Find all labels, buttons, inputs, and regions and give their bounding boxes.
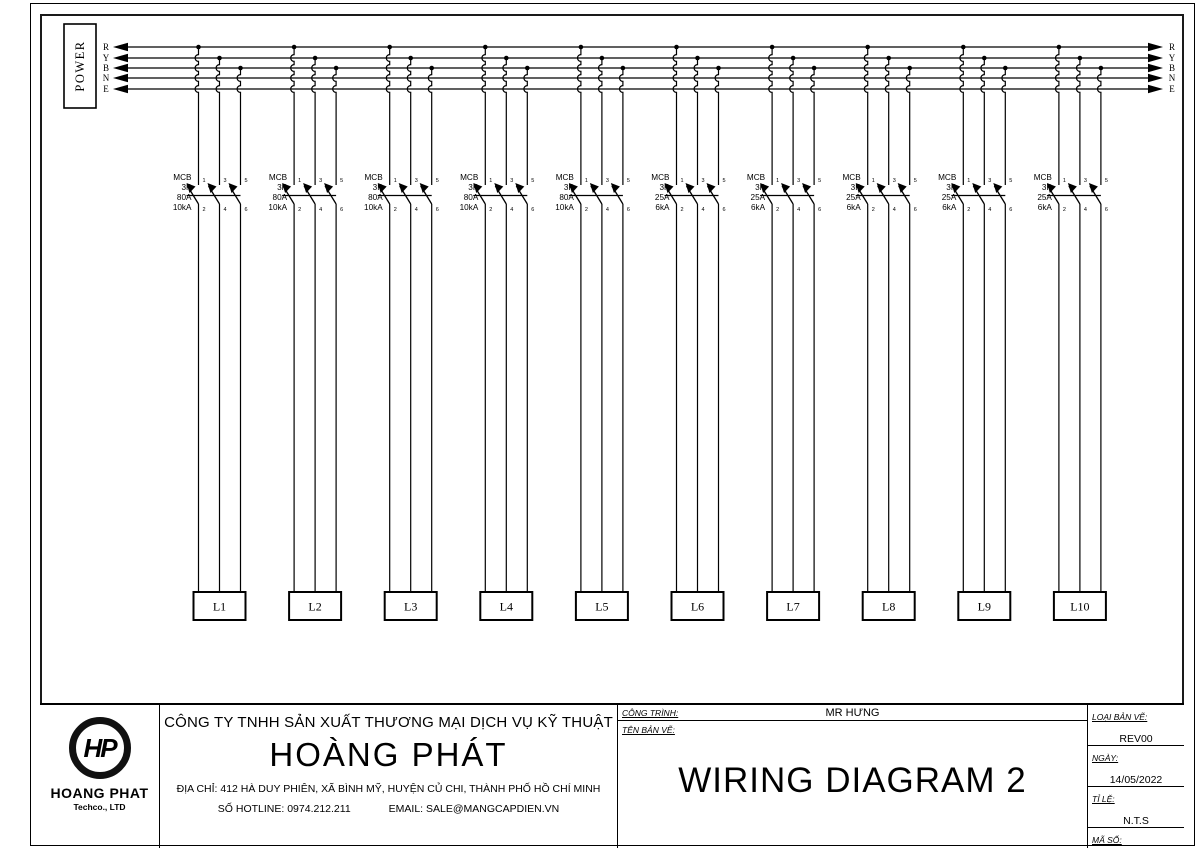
load-label: L7 — [786, 600, 799, 614]
terminal-number-bottom: 6 — [340, 207, 343, 213]
logo-monogram: HP — [83, 733, 115, 764]
mcb-group-L10: MCB3P25A6kA123456 — [1034, 45, 1108, 592]
terminal-number-bottom: 2 — [872, 207, 875, 213]
bus-connection-dot — [674, 45, 679, 50]
terminal-number-bottom: 6 — [914, 207, 917, 213]
mcb-rating-line: 6kA — [847, 203, 862, 212]
bus-connection-dot — [334, 66, 339, 71]
meta-value: N.T.S — [1088, 815, 1184, 827]
bus-arrow-right-icon — [1148, 74, 1163, 82]
company-address: ĐỊA CHỈ: 412 HÀ DUY PHIÊN, XÃ BÌNH MỸ, H… — [160, 783, 617, 795]
terminal-number-bottom: 6 — [531, 207, 534, 213]
mcb-rating-line: 80A — [464, 193, 479, 202]
phase-tap-wire — [620, 68, 623, 185]
terminal-number-top: 1 — [776, 178, 779, 184]
bus-arrow-left-icon — [113, 85, 128, 93]
terminal-number-bottom: 4 — [1084, 207, 1087, 213]
phase-tap-wire — [524, 68, 527, 185]
load-label: L1 — [213, 600, 226, 614]
terminal-number-bottom: 6 — [436, 207, 439, 213]
terminal-number-top: 5 — [914, 178, 917, 184]
bus-connection-dot — [429, 66, 434, 71]
mcb-rating-line: 25A — [1037, 193, 1052, 202]
terminal-number-top: 5 — [436, 178, 439, 184]
load-label: L2 — [308, 600, 321, 614]
mcb-group-L7: MCB3P25A6kA123456 — [747, 45, 821, 592]
load-label: L3 — [404, 600, 417, 614]
terminal-number-bottom: 6 — [627, 207, 630, 213]
bus-connection-dot — [196, 45, 201, 50]
terminal-number-bottom: 2 — [203, 207, 206, 213]
mcb-rating-line: MCB — [747, 173, 766, 182]
bus-arrow-left-icon — [113, 64, 128, 72]
meta-label: TỈ LỆ: — [1088, 794, 1115, 804]
bus-arrow-right-icon — [1148, 64, 1163, 72]
bus-connection-dot — [313, 56, 318, 61]
terminal-number-bottom: 6 — [1105, 207, 1108, 213]
meta-label: MÃ SỐ: — [1088, 835, 1122, 845]
terminal-number-bottom: 2 — [394, 207, 397, 213]
mcb-rating-line: MCB — [938, 173, 957, 182]
terminal-number-bottom: 6 — [723, 207, 726, 213]
bus-label-right: B — [1169, 63, 1175, 73]
phase-tap-wire — [811, 68, 814, 185]
project-value: MR HƯNG — [618, 707, 1087, 719]
mcb-rating-line: 10kA — [555, 203, 574, 212]
terminal-number-bottom: 2 — [489, 207, 492, 213]
terminal-number-bottom: 2 — [967, 207, 970, 213]
bus-connection-dot — [238, 66, 243, 71]
terminal-number-bottom: 4 — [797, 207, 800, 213]
terminal-number-top: 3 — [988, 178, 991, 184]
revision-column: LOẠI BẢN VẼ: REV00 NGÀY: 14/05/2022 TỈ L… — [1088, 705, 1184, 848]
company-email: EMAIL: SALE@MANGCAPDIEN.VN — [389, 803, 560, 815]
mcb-rating-line: 25A — [751, 193, 766, 202]
bus-label-left: Y — [103, 53, 110, 63]
mcb-rating-line: 25A — [942, 193, 957, 202]
terminal-number-top: 1 — [1063, 178, 1066, 184]
terminal-number-bottom: 2 — [298, 207, 301, 213]
logo-company-name: HOANG PHAT — [50, 785, 148, 801]
mcb-group-L9: MCB3P25A6kA123456 — [938, 45, 1012, 592]
load-label: L5 — [595, 600, 608, 614]
phase-tap-wire — [333, 68, 336, 185]
load-box-L7: L7 — [767, 592, 819, 620]
drawing-info-cell: CÔNG TRÌNH: MR HƯNG TÊN BẢN VẼ: WIRING D… — [618, 705, 1088, 848]
bus-label-left: B — [103, 63, 109, 73]
drawing-name-label: TÊN BẢN VẼ: — [618, 725, 675, 735]
terminal-number-top: 1 — [585, 178, 588, 184]
bus-arrow-left-icon — [113, 74, 128, 82]
bus-line-R: RR — [103, 42, 1175, 52]
load-box-L6: L6 — [672, 592, 724, 620]
mcb-rating-line: 80A — [273, 193, 288, 202]
bus-arrow-left-icon — [113, 54, 128, 62]
bus-connection-dot — [483, 45, 488, 50]
phase-tap-wire — [981, 58, 984, 185]
bus-line-B: BB — [103, 63, 1175, 73]
mcb-rating-line: MCB — [842, 173, 861, 182]
terminal-number-top: 5 — [723, 178, 726, 184]
terminal-number-bottom: 6 — [1009, 207, 1012, 213]
mcb-rating-line: 6kA — [942, 203, 957, 212]
load-label: L9 — [978, 600, 991, 614]
company-name: HOÀNG PHÁT — [160, 736, 617, 774]
bus-label-right: R — [1169, 42, 1175, 52]
terminal-number-bottom: 4 — [893, 207, 896, 213]
mcb-rating-line: MCB — [269, 173, 288, 182]
phase-tap-wire — [1098, 68, 1101, 185]
meta-row-code: MÃ SỐ: 005 — [1088, 828, 1184, 848]
terminal-number-bottom: 4 — [319, 207, 322, 213]
bus-connection-dot — [886, 56, 891, 61]
terminal-number-top: 3 — [415, 178, 418, 184]
phase-tap-wire — [694, 58, 697, 185]
bus-arrow-right-icon — [1148, 43, 1163, 51]
bus-connection-dot — [1099, 66, 1104, 71]
mcb-group-L4: MCB3P80A10kA123456 — [460, 45, 535, 592]
phase-tap-wire — [906, 68, 909, 185]
project-row: CÔNG TRÌNH: MR HƯNG — [618, 705, 1087, 721]
hoang-phat-logo-icon: HP — [69, 717, 131, 779]
terminal-number-top: 1 — [489, 178, 492, 184]
bus-connection-dot — [1078, 56, 1083, 61]
drawing-title-area: TÊN BẢN VẼ: WIRING DIAGRAM 2 — [618, 721, 1087, 848]
bus-connection-dot — [716, 66, 721, 71]
load-box-L9: L9 — [958, 592, 1010, 620]
terminal-number-top: 3 — [224, 178, 227, 184]
company-type-line: CÔNG TY TNHH SẢN XUẤT THƯƠNG MẠI DỊCH VỤ… — [160, 714, 617, 731]
bus-connection-dot — [600, 56, 605, 61]
load-box-L10: L10 — [1054, 592, 1106, 620]
meta-value: REV00 — [1088, 733, 1184, 745]
bus-connection-dot — [982, 56, 987, 61]
company-contact: SỐ HOTLINE: 0974.212.211 EMAIL: SALE@MAN… — [160, 803, 617, 815]
bus-connection-dot — [1003, 66, 1008, 71]
terminal-number-top: 5 — [627, 178, 630, 184]
load-label: L8 — [882, 600, 895, 614]
load-box-L3: L3 — [385, 592, 437, 620]
mcb-group-L1: MCB3P80A10kA123456 — [173, 45, 248, 592]
load-box-L4: L4 — [480, 592, 532, 620]
terminal-number-top: 5 — [531, 178, 534, 184]
terminal-number-top: 5 — [340, 178, 343, 184]
bus-connection-dot — [907, 66, 912, 71]
terminal-number-top: 5 — [1105, 178, 1108, 184]
terminal-number-top: 1 — [298, 178, 301, 184]
phase-tap-wire — [428, 68, 431, 185]
mcb-rating-line: MCB — [364, 173, 383, 182]
phase-tap-wire — [503, 58, 506, 185]
mcb-rating-line: 6kA — [751, 203, 766, 212]
mcb-rating-line: 25A — [846, 193, 861, 202]
mcb-rating-line: MCB — [556, 173, 575, 182]
bus-connection-dot — [812, 66, 817, 71]
load-box-L5: L5 — [576, 592, 628, 620]
bus-line-E: EE — [103, 84, 1175, 94]
bus-line-Y: YY — [103, 53, 1176, 63]
phase-tap-wire — [599, 58, 602, 185]
title-block: HP HOANG PHAT Techco., LTD CÔNG TY TNHH … — [40, 703, 1184, 836]
terminal-number-top: 3 — [606, 178, 609, 184]
meta-row-revision: LOẠI BẢN VẼ: REV00 — [1088, 705, 1184, 746]
phase-tap-wire — [216, 58, 219, 185]
mcb-rating-line: 10kA — [460, 203, 479, 212]
bus-connection-dot — [525, 66, 530, 71]
terminal-number-bottom: 4 — [988, 207, 991, 213]
mcb-rating-line: MCB — [173, 173, 192, 182]
meta-row-date: NGÀY: 14/05/2022 — [1088, 746, 1184, 787]
bus-line-N: NN — [103, 73, 1176, 83]
terminal-number-bottom: 4 — [606, 207, 609, 213]
drawing-page: POWERRRYYBBNNEEMCB3P80A10kA123456L1MCB3P… — [0, 0, 1200, 848]
bus-connection-dot — [791, 56, 796, 61]
company-info-cell: CÔNG TY TNHH SẢN XUẤT THƯƠNG MẠI DỊCH VỤ… — [160, 705, 618, 848]
terminal-number-bottom: 2 — [776, 207, 779, 213]
mcb-rating-line: 10kA — [364, 203, 383, 212]
bus-label-right: Y — [1169, 53, 1176, 63]
load-box-L1: L1 — [194, 592, 246, 620]
bus-connection-dot — [695, 56, 700, 61]
mcb-rating-line: 80A — [368, 193, 383, 202]
mcb-rating-line: 6kA — [655, 203, 670, 212]
bus-connection-dot — [387, 45, 392, 50]
bus-label-right: N — [1169, 73, 1176, 83]
bus-connection-dot — [217, 56, 222, 61]
terminal-number-bottom: 4 — [415, 207, 418, 213]
mcb-rating-line: 25A — [655, 193, 670, 202]
terminal-number-bottom: 4 — [224, 207, 227, 213]
mcb-rating-line: 10kA — [268, 203, 287, 212]
power-source: POWER — [64, 24, 96, 108]
terminal-number-top: 3 — [319, 178, 322, 184]
bus-connection-dot — [770, 45, 775, 50]
terminal-number-top: 1 — [203, 178, 206, 184]
bus-label-right: E — [1169, 84, 1175, 94]
terminal-number-top: 5 — [1009, 178, 1012, 184]
mcb-rating-line: 6kA — [1038, 203, 1053, 212]
phase-tap-wire — [1077, 58, 1080, 185]
load-label: L10 — [1070, 600, 1089, 614]
terminal-number-top: 1 — [967, 178, 970, 184]
phase-tap-wire — [715, 68, 718, 185]
terminal-number-bottom: 6 — [245, 207, 248, 213]
terminal-number-top: 1 — [681, 178, 684, 184]
mcb-rating-line: MCB — [651, 173, 670, 182]
bus-connection-dot — [621, 66, 626, 71]
mcb-group-L6: MCB3P25A6kA123456 — [651, 45, 725, 592]
bus-connection-dot — [292, 45, 297, 50]
mcb-group-L3: MCB3P80A10kA123456 — [364, 45, 439, 592]
terminal-number-bottom: 6 — [818, 207, 821, 213]
mcb-group-L8: MCB3P25A6kA123456 — [842, 45, 916, 592]
meta-row-scale: TỈ LỆ: N.T.S — [1088, 787, 1184, 828]
logo-subtitle: Techco., LTD — [73, 802, 125, 812]
terminal-number-top: 3 — [702, 178, 705, 184]
bus-connection-dot — [579, 45, 584, 50]
company-hotline: SỐ HOTLINE: 0974.212.211 — [218, 803, 351, 815]
phase-tap-wire — [312, 58, 315, 185]
phase-tap-wire — [790, 58, 793, 185]
meta-label: NGÀY: — [1088, 753, 1118, 763]
mcb-rating-line: 80A — [559, 193, 574, 202]
drawing-title: WIRING DIAGRAM 2 — [618, 761, 1087, 801]
phase-tap-wire — [407, 58, 410, 185]
bus-label-left: E — [103, 84, 109, 94]
terminal-number-top: 5 — [818, 178, 821, 184]
phase-tap-wire — [885, 58, 888, 185]
phase-tap-wire — [237, 68, 240, 185]
mcb-rating-line: 80A — [177, 193, 192, 202]
terminal-number-bottom: 2 — [681, 207, 684, 213]
mcb-group-L5: MCB3P80A10kA123456 — [555, 45, 630, 592]
terminal-number-top: 3 — [1084, 178, 1087, 184]
load-label: L4 — [500, 600, 513, 614]
terminal-number-top: 1 — [872, 178, 875, 184]
terminal-number-bottom: 2 — [585, 207, 588, 213]
load-label: L6 — [691, 600, 704, 614]
meta-label: LOẠI BẢN VẼ: — [1088, 712, 1147, 722]
phase-tap-wire — [1002, 68, 1005, 185]
bus-label-left: N — [103, 73, 110, 83]
mcb-rating-line: MCB — [460, 173, 479, 182]
power-label: POWER — [73, 40, 87, 91]
logo-cell: HP HOANG PHAT Techco., LTD — [40, 705, 160, 848]
terminal-number-bottom: 4 — [510, 207, 513, 213]
bus-connection-dot — [504, 56, 509, 61]
bus-arrow-left-icon — [113, 43, 128, 51]
bus-connection-dot — [408, 56, 413, 61]
bus-connection-dot — [1057, 45, 1062, 50]
bus-connection-dot — [865, 45, 870, 50]
bus-arrow-right-icon — [1148, 54, 1163, 62]
terminal-number-top: 1 — [394, 178, 397, 184]
meta-value: 14/05/2022 — [1088, 774, 1184, 786]
bus-arrow-right-icon — [1148, 85, 1163, 93]
bus-label-left: R — [103, 42, 109, 52]
load-box-L2: L2 — [289, 592, 341, 620]
terminal-number-top: 5 — [245, 178, 248, 184]
bus-connection-dot — [961, 45, 966, 50]
terminal-number-bottom: 4 — [702, 207, 705, 213]
mcb-rating-line: 10kA — [173, 203, 192, 212]
terminal-number-bottom: 2 — [1063, 207, 1066, 213]
terminal-number-top: 3 — [893, 178, 896, 184]
terminal-number-top: 3 — [797, 178, 800, 184]
terminal-number-top: 3 — [510, 178, 513, 184]
load-box-L8: L8 — [863, 592, 915, 620]
mcb-group-L2: MCB3P80A10kA123456 — [268, 45, 343, 592]
mcb-rating-line: MCB — [1034, 173, 1053, 182]
